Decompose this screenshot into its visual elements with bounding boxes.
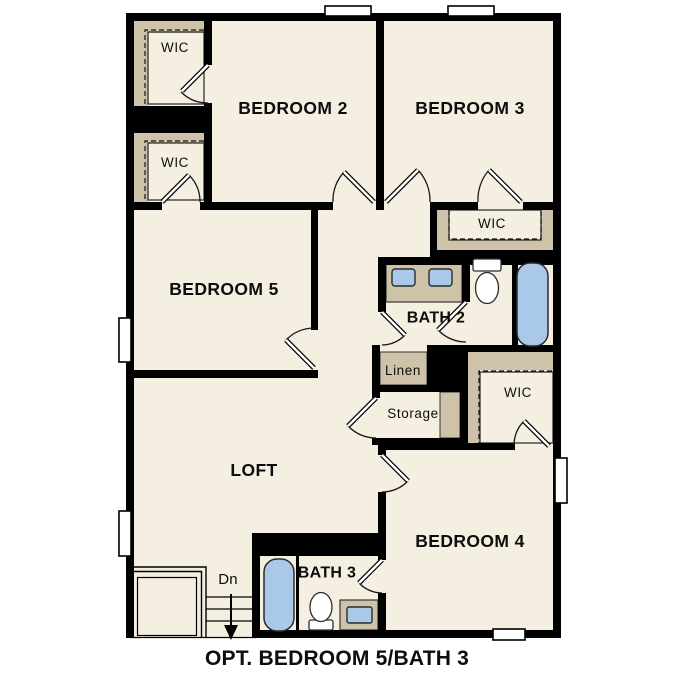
bath2-sink-left (392, 269, 415, 286)
bath3-toilet-bowl (310, 593, 332, 622)
bath2-toilet-tank (473, 259, 501, 271)
window-top-bedroom3 (448, 6, 494, 16)
bath3-bathtub (264, 559, 294, 631)
label-wic-top1: WIC (161, 41, 189, 55)
floorplan-page: BEDROOM 2 BEDROOM 3 BEDROOM 5 LOFT BEDRO… (0, 0, 687, 687)
label-bedroom-2: BEDROOM 2 (238, 99, 348, 117)
label-bedroom-3: BEDROOM 3 (415, 99, 525, 117)
bath2-toilet-bowl (476, 273, 499, 304)
label-bath-3: BATH 3 (296, 566, 358, 583)
label-bedroom-4: BEDROOM 4 (415, 532, 525, 550)
window-left-bedroom5 (119, 318, 131, 362)
label-linen: Linen (385, 364, 421, 378)
label-wic-bedroom3: WIC (478, 217, 506, 231)
label-bedroom-5: BEDROOM 5 (169, 280, 279, 298)
window-bottom-bedroom4 (493, 629, 525, 640)
label-wic-bedroom4: WIC (504, 386, 532, 400)
bath2-sink-right (429, 269, 452, 286)
window-top-bedroom2 (325, 6, 371, 16)
label-wic-top2: WIC (161, 156, 189, 170)
label-stairs-down: Dn (218, 572, 238, 588)
plan-caption: OPT. BEDROOM 5/BATH 3 (205, 648, 469, 670)
label-storage: Storage (387, 407, 438, 421)
window-right-bedroom4 (555, 458, 567, 503)
label-bath-2: BATH 2 (405, 311, 467, 328)
label-loft: LOFT (230, 461, 277, 479)
window-left-loft (119, 511, 131, 556)
bath2-bathtub (517, 263, 548, 346)
bath3-sink (347, 607, 372, 623)
